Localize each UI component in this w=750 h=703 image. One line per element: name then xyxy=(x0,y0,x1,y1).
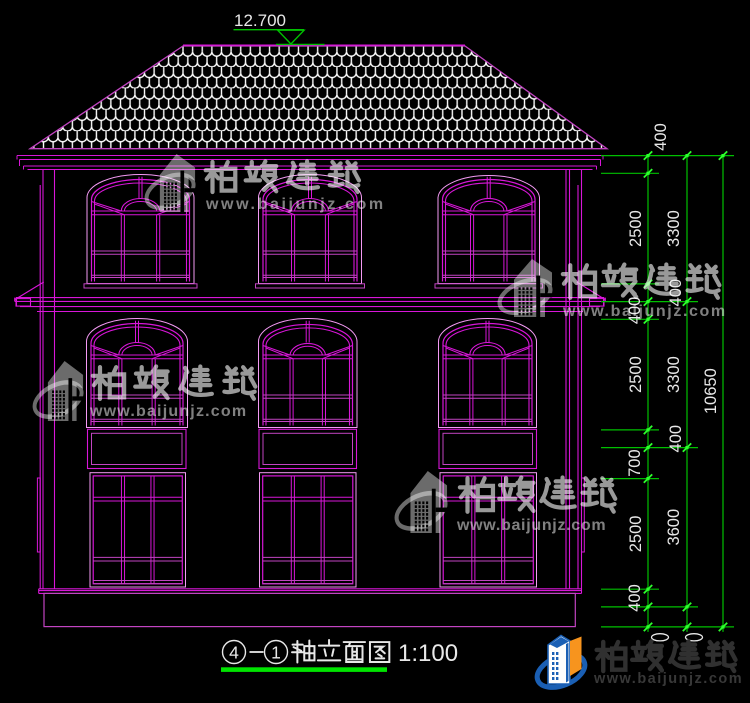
svg-text:2500: 2500 xyxy=(627,210,645,247)
svg-text:400: 400 xyxy=(626,584,644,612)
svg-text:4: 4 xyxy=(229,643,239,663)
svg-text:3300: 3300 xyxy=(665,356,683,393)
svg-text:www.baijunjz.com: www.baijunjz.com xyxy=(89,403,247,420)
svg-text:www.baijunjz.com: www.baijunjz.com xyxy=(562,303,727,320)
svg-text:400: 400 xyxy=(667,425,685,453)
svg-text:3600: 3600 xyxy=(665,509,683,546)
svg-text:www.baijunjz.com: www.baijunjz.com xyxy=(593,671,743,687)
svg-text:2500: 2500 xyxy=(627,516,645,553)
svg-text:400: 400 xyxy=(652,123,670,151)
svg-text:12.700: 12.700 xyxy=(234,11,286,30)
svg-text:www.baijunjz.com: www.baijunjz.com xyxy=(205,196,386,213)
svg-text:10650: 10650 xyxy=(702,368,720,414)
svg-text:700: 700 xyxy=(626,449,644,477)
svg-text:3300: 3300 xyxy=(665,210,683,247)
svg-text:www.baijunjz.com: www.baijunjz.com xyxy=(456,517,606,534)
svg-text:1: 1 xyxy=(271,643,281,663)
svg-text:1:100: 1:100 xyxy=(398,640,458,667)
svg-text:2500: 2500 xyxy=(627,356,645,393)
